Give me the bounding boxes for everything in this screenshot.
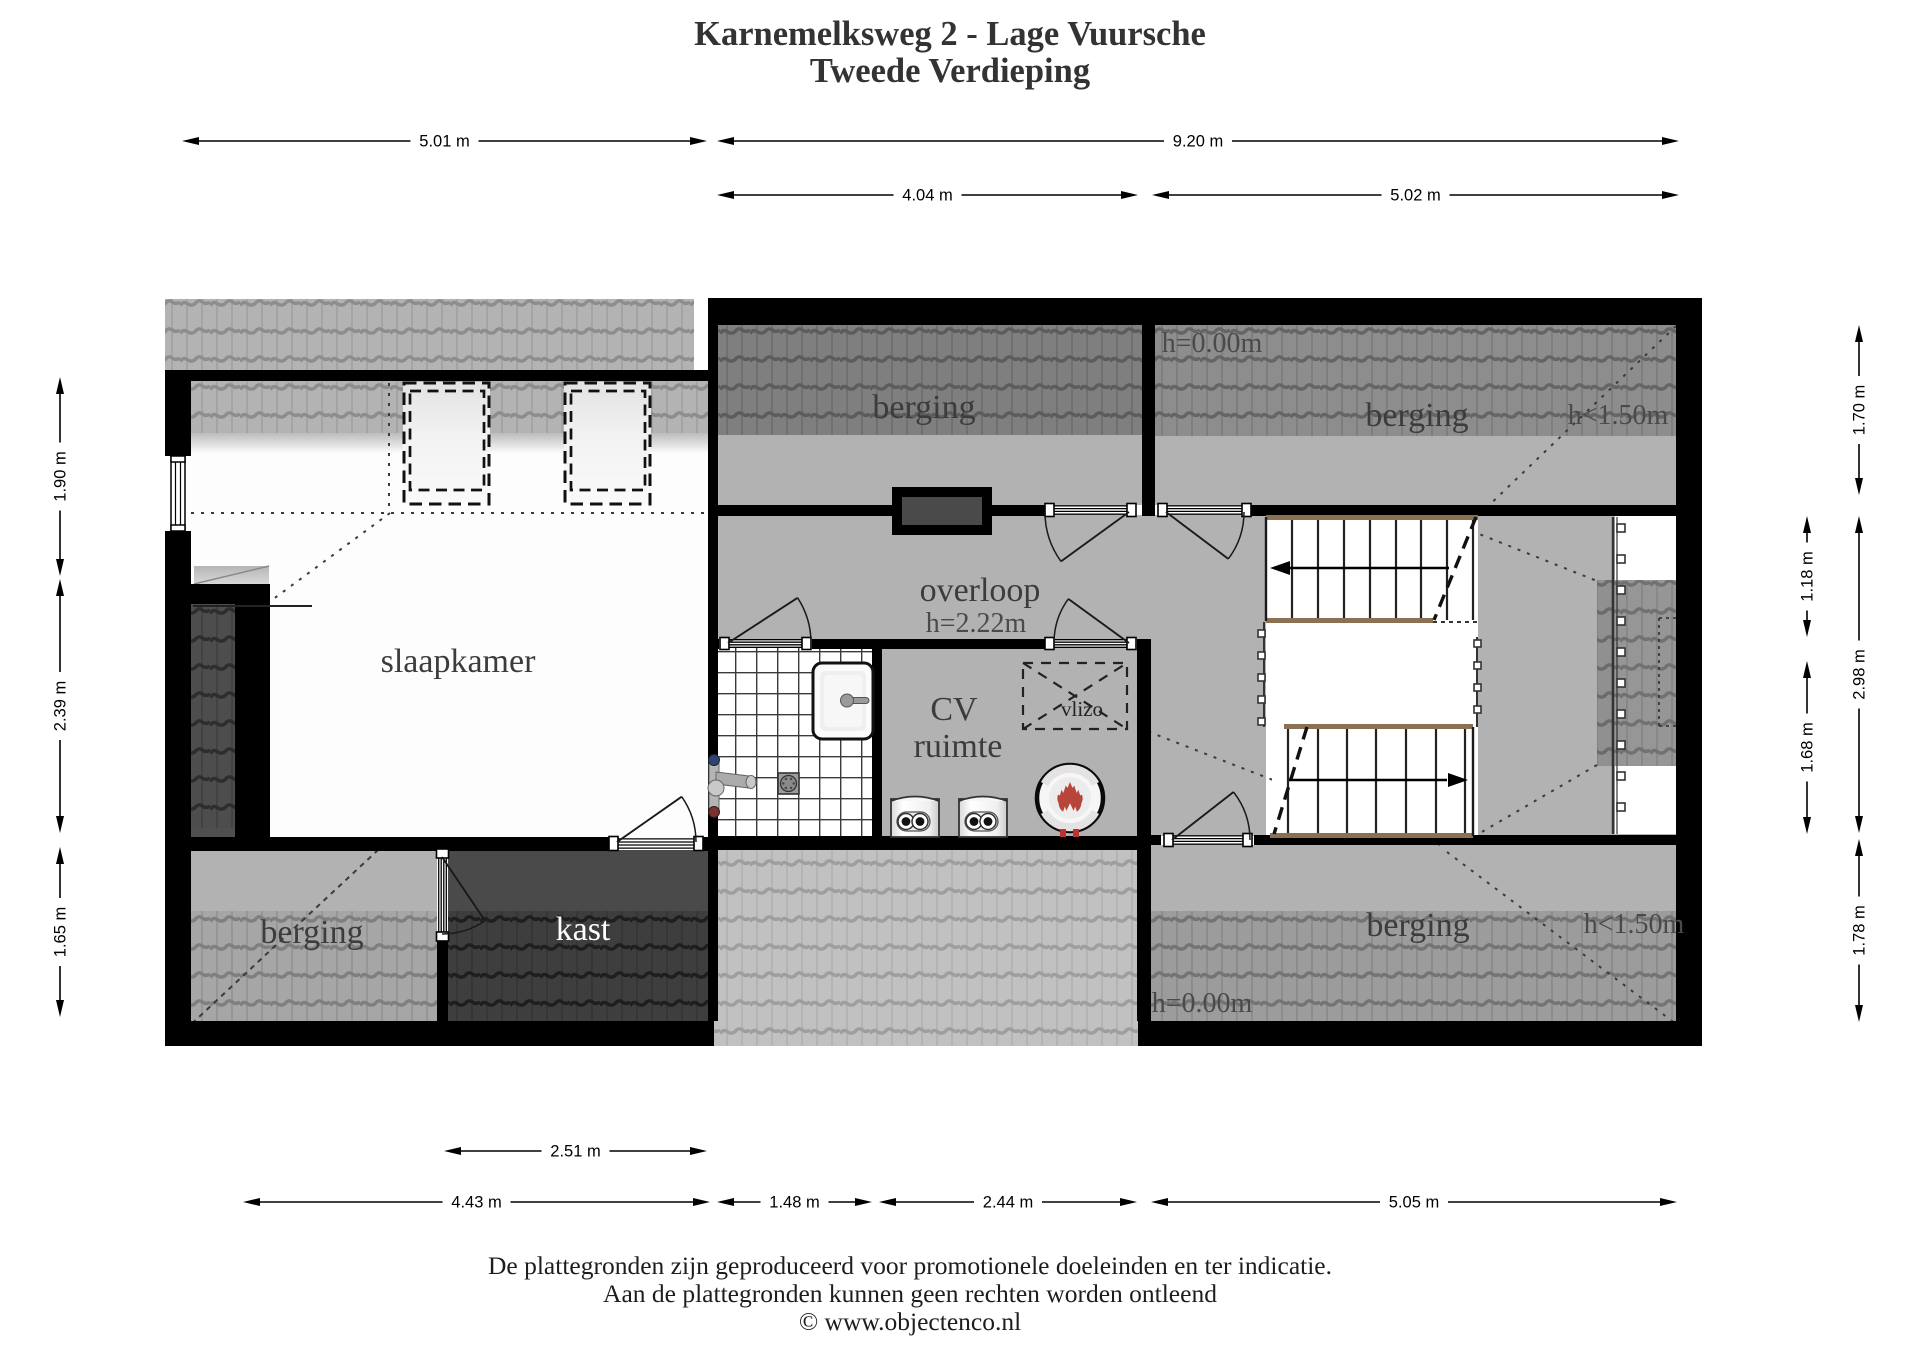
svg-text:9.20 m: 9.20 m [1173,133,1223,151]
svg-text:2.39 m: 2.39 m [52,681,70,731]
svg-text:h=0.00m: h=0.00m [1152,988,1253,1019]
svg-text:2.51 m: 2.51 m [550,1143,600,1161]
svg-text:Aan de plattegronden kunnen ge: Aan de plattegronden kunnen geen rechten… [603,1279,1217,1308]
svg-text:5.05 m: 5.05 m [1389,1194,1439,1212]
svg-text:Tweede Verdieping: Tweede Verdieping [810,52,1090,90]
svg-text:h<1.50m: h<1.50m [1568,400,1669,431]
svg-text:h=2.22m: h=2.22m [926,608,1027,639]
svg-text:1.68 m: 1.68 m [1799,722,1817,772]
svg-text:2.44 m: 2.44 m [983,1194,1033,1212]
svg-text:h<1.50m: h<1.50m [1584,909,1685,940]
svg-text:1.65 m: 1.65 m [52,907,70,957]
svg-text:5.02 m: 5.02 m [1390,187,1440,205]
svg-text:4.43 m: 4.43 m [451,1194,501,1212]
svg-text:Karnemelksweg 2 - Lage Vuursch: Karnemelksweg 2 - Lage Vuursche [694,15,1206,53]
svg-text:kast: kast [556,911,611,948]
svg-text:overloop: overloop [920,572,1041,609]
svg-text:4.04 m: 4.04 m [902,187,952,205]
svg-text:1.18 m: 1.18 m [1799,551,1817,601]
svg-text:berging: berging [1365,397,1468,434]
svg-text:1.90 m: 1.90 m [52,451,70,501]
svg-text:1.78 m: 1.78 m [1851,905,1869,955]
svg-text:berging: berging [872,389,975,426]
svg-text:ruimte: ruimte [914,728,1003,765]
svg-text:CV: CV [930,691,978,728]
svg-text:2.98 m: 2.98 m [1851,649,1869,699]
svg-text:berging: berging [260,914,363,951]
svg-text:h=0.00m: h=0.00m [1162,328,1263,359]
svg-text:1.70 m: 1.70 m [1851,385,1869,435]
svg-text:© www.objectenco.nl: © www.objectenco.nl [799,1307,1021,1336]
svg-text:vlizo: vlizo [1061,697,1103,721]
svg-text:berging: berging [1366,907,1469,944]
svg-text:5.01 m: 5.01 m [419,133,469,151]
svg-text:1.48 m: 1.48 m [769,1194,819,1212]
svg-text:slaapkamer: slaapkamer [381,643,536,680]
svg-text:De plattegronden zijn geproduc: De plattegronden zijn geproduceerd voor … [488,1251,1332,1280]
